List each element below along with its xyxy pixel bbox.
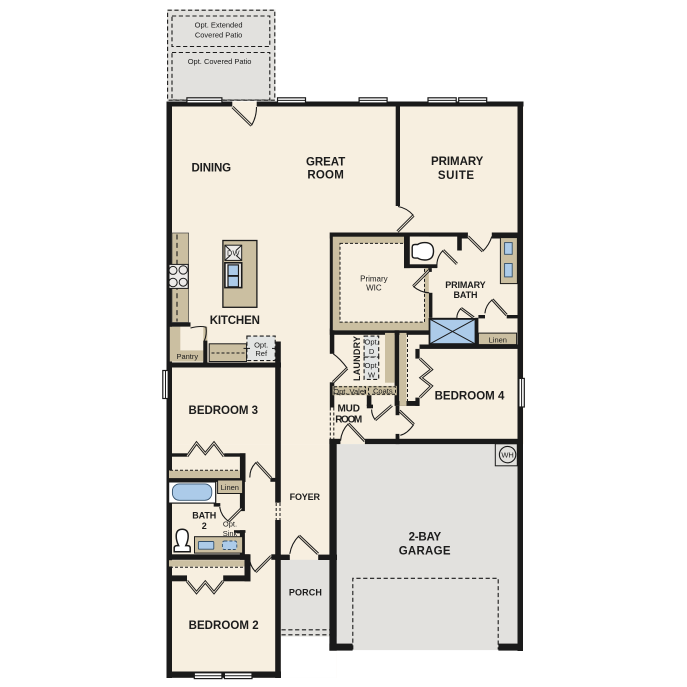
svg-text:Pantry: Pantry — [176, 352, 198, 361]
svg-text:SUITE: SUITE — [438, 170, 475, 182]
svg-text:Opt.: Opt. — [254, 340, 268, 349]
svg-text:LAUNDRY: LAUNDRY — [352, 336, 362, 381]
svg-text:2: 2 — [202, 521, 207, 531]
svg-text:KITCHEN: KITCHEN — [210, 315, 260, 327]
svg-text:ROOM: ROOM — [335, 415, 362, 426]
svg-text:Opt. Extended: Opt. Extended — [195, 21, 243, 30]
svg-text:FOYER: FOYER — [290, 492, 321, 502]
svg-text:Opt. Valet: Opt. Valet — [333, 387, 367, 396]
svg-text:GARAGE: GARAGE — [399, 545, 451, 557]
svg-text:MUD: MUD — [337, 404, 360, 415]
svg-text:Coats: Coats — [373, 387, 393, 396]
svg-text:Ref: Ref — [255, 349, 268, 358]
svg-text:PRIMARY: PRIMARY — [445, 280, 485, 290]
svg-text:Opt.: Opt. — [365, 361, 379, 370]
svg-text:DW: DW — [227, 248, 240, 257]
svg-text:BATH: BATH — [454, 290, 478, 300]
svg-text:BATH: BATH — [192, 511, 216, 521]
svg-text:BEDROOM 4: BEDROOM 4 — [435, 391, 505, 403]
svg-text:Linen: Linen — [489, 335, 507, 344]
svg-text:DINING: DINING — [192, 162, 232, 174]
svg-text:WIC: WIC — [366, 283, 382, 292]
svg-text:Opt.: Opt. — [223, 520, 237, 529]
svg-text:Covered Patio: Covered Patio — [195, 31, 243, 40]
svg-text:Linen: Linen — [221, 483, 239, 492]
svg-text:BEDROOM 2: BEDROOM 2 — [189, 620, 259, 632]
svg-text:GREAT: GREAT — [306, 156, 345, 168]
svg-text:ROOM: ROOM — [307, 170, 343, 182]
svg-text:Sink: Sink — [223, 529, 238, 538]
svg-text:PRIMARY: PRIMARY — [431, 156, 484, 168]
svg-text:D: D — [369, 347, 375, 356]
svg-text:WH: WH — [501, 451, 514, 460]
svg-text:W: W — [368, 370, 376, 379]
svg-text:2-BAY: 2-BAY — [409, 531, 442, 543]
svg-text:BEDROOM 3: BEDROOM 3 — [189, 405, 258, 417]
svg-text:Opt. Covered Patio: Opt. Covered Patio — [188, 57, 252, 66]
svg-text:Primary: Primary — [360, 274, 388, 283]
svg-text:Opt.: Opt. — [365, 338, 379, 347]
svg-text:PORCH: PORCH — [289, 588, 322, 598]
